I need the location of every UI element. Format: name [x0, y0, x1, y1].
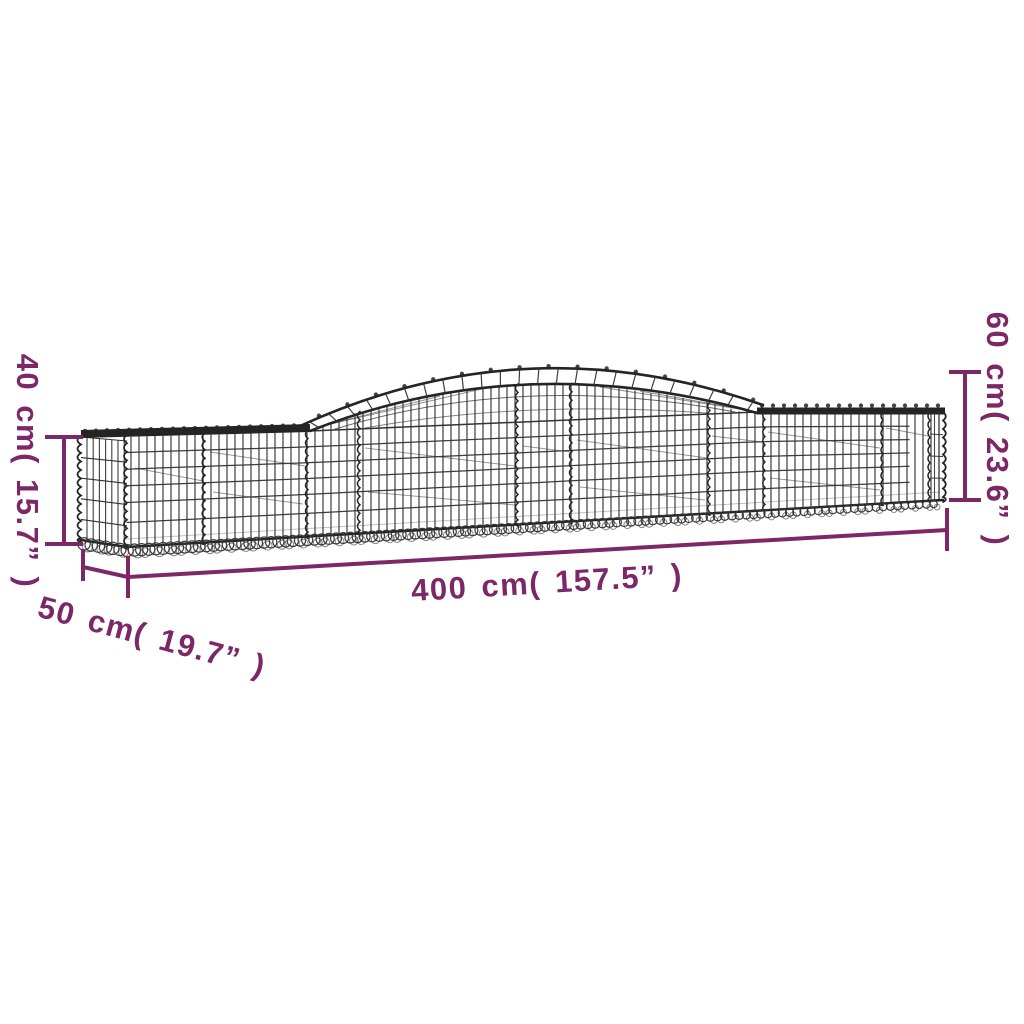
dim-label-height-left: 40 cm( 15.7” )	[9, 354, 45, 589]
gabion-diagram-svg	[0, 0, 1024, 1024]
dim-line-height-right	[949, 372, 981, 500]
dim-label-height-right: 60 cm( 23.6” )	[979, 312, 1015, 547]
diagram-canvas: 40 cm( 15.7” ) 60 cm( 23.6” ) 400 cm( 15…	[0, 0, 1024, 1024]
gabion-basket-wireframe	[78, 365, 946, 558]
